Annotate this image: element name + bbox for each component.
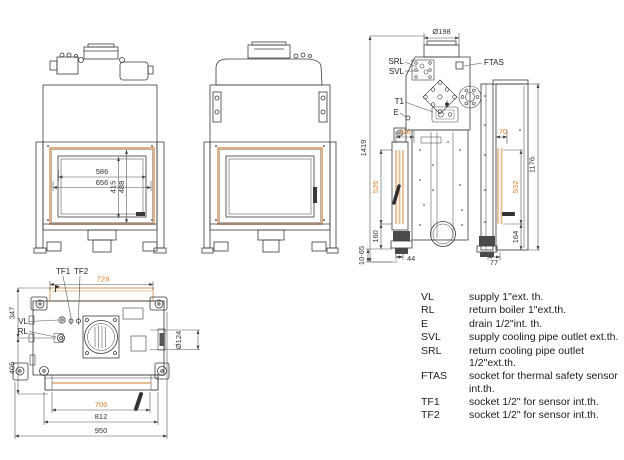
legend-abbr: TF1 xyxy=(421,396,469,408)
dim-656: 656 xyxy=(96,178,109,187)
dim-70: 70 xyxy=(499,127,507,136)
dim-1176: 1176 xyxy=(528,157,537,173)
plan-view: TF1 TF2 729 VL RL 347 405 Ø124 706 812 9… xyxy=(8,267,201,439)
legend-abbr: SRL xyxy=(421,345,469,370)
t1-plate xyxy=(432,100,458,122)
srl-svl-flange xyxy=(412,60,434,80)
dim-532: 532 xyxy=(511,181,520,194)
dim-950: 950 xyxy=(95,426,108,435)
front-view: 586 656 415 488 xyxy=(34,44,166,253)
right-side-profile xyxy=(477,80,528,257)
dim-586: 586 xyxy=(96,167,109,176)
dim-405: 405 xyxy=(8,362,17,375)
rl-fitting xyxy=(57,334,64,341)
left-glass-edge xyxy=(391,128,412,254)
label-e: E xyxy=(394,108,399,117)
dim-526: 526 xyxy=(371,181,380,194)
legend-abbr: RL xyxy=(421,304,469,316)
legend-desc: socket 1/2" for sensor int.th. xyxy=(469,396,621,408)
rear-side-view: Ø198 SRL SVL FTAS T1 E 1419 116 70 526 5… xyxy=(357,27,540,267)
abbreviation-legend: VL supply 1"ext. th. RL return boiler 1"… xyxy=(421,291,623,423)
middle-view xyxy=(202,42,338,253)
legend-row: TF2 socket 1/2" for sensor int.th. xyxy=(421,409,623,421)
middle-door-handle xyxy=(313,187,317,203)
vl-fitting xyxy=(59,317,65,323)
legend-row: TF1 socket 1/2" for sensor int.th. xyxy=(421,396,623,408)
label-tf1: TF1 xyxy=(56,267,71,276)
middle-body xyxy=(210,85,330,230)
dim-488: 488 xyxy=(117,181,126,194)
side-handle-2 xyxy=(502,212,515,216)
dim-706: 706 xyxy=(95,400,108,409)
label-tf2: TF2 xyxy=(74,267,89,276)
rear-duct-circle xyxy=(431,222,456,247)
legend-abbr: E xyxy=(421,318,469,330)
plan-blower xyxy=(83,316,119,358)
legend-abbr: SVL xyxy=(421,331,469,343)
legend-row: FTAS socket for thermal safety sensor in… xyxy=(421,370,623,395)
legend-desc: return boiler 1"ext.th. xyxy=(469,304,621,316)
rear-flue-collar xyxy=(424,45,459,57)
legend-desc: socket for thermal safety sensor int.th. xyxy=(469,370,621,395)
legend-desc: socket 1/2" for sensor int.th. xyxy=(469,409,621,421)
side-handle xyxy=(394,186,399,203)
legend-row: E drain 1/2"int. th. xyxy=(421,318,623,330)
front-body xyxy=(43,85,157,230)
label-rl: RL xyxy=(18,327,29,336)
legend-abbr: TF2 xyxy=(421,409,469,421)
burner-plate-diamond xyxy=(423,80,457,114)
rear-screws xyxy=(419,141,463,226)
legend-row: RL return boiler 1"ext.th. xyxy=(421,304,623,316)
label-srl: SRL xyxy=(388,57,404,66)
legend-desc: return cooling pipe outlet 1/2"ext.th. xyxy=(469,345,621,370)
label-svl: SVL xyxy=(389,67,405,76)
label-t1: T1 xyxy=(395,97,405,106)
legend-row: VL supply 1"ext. th. xyxy=(421,291,623,303)
legend-abbr: VL xyxy=(421,291,469,303)
middle-flue-assembly xyxy=(248,42,312,58)
legend-desc: supply cooling pipe outlet ext.th. xyxy=(469,331,621,343)
plan-handle xyxy=(136,394,141,409)
ftas-fitting xyxy=(456,62,463,69)
legend-row: SRL return cooling pipe outlet 1/2"ext.t… xyxy=(421,345,623,370)
dim-77: 77 xyxy=(490,258,498,267)
dim-160: 160 xyxy=(371,230,380,243)
dim-duct-diameter: Ø124 xyxy=(174,331,183,349)
drain-fitting xyxy=(406,116,410,120)
front-flue-assembly xyxy=(50,44,153,80)
dim-10-65: 10-65 xyxy=(357,246,366,265)
legend-row: SVL supply cooling pipe outlet ext.th. xyxy=(421,331,623,343)
dim-flue-diameter: Ø198 xyxy=(432,27,450,36)
dim-44: 44 xyxy=(407,254,415,263)
label-ftas: FTAS xyxy=(484,58,504,67)
legend-abbr: FTAS xyxy=(421,370,469,395)
dim-812: 812 xyxy=(95,412,108,421)
legend-desc: supply 1"ext. th. xyxy=(469,291,621,303)
dim-729: 729 xyxy=(97,275,110,284)
dim-116: 116 xyxy=(399,127,411,136)
dim-164: 164 xyxy=(511,231,520,244)
dim-347: 347 xyxy=(8,307,17,320)
legend-desc: drain 1/2"int. th. xyxy=(469,318,621,330)
technical-drawing-sheet: 586 656 415 488 xyxy=(0,0,624,460)
middle-door-frame xyxy=(218,148,322,224)
front-door-handle xyxy=(136,212,145,216)
dim-1419: 1419 xyxy=(359,140,368,157)
middle-boiler-top xyxy=(216,59,322,85)
label-vl: VL xyxy=(18,317,28,326)
middle-glass xyxy=(226,156,314,217)
